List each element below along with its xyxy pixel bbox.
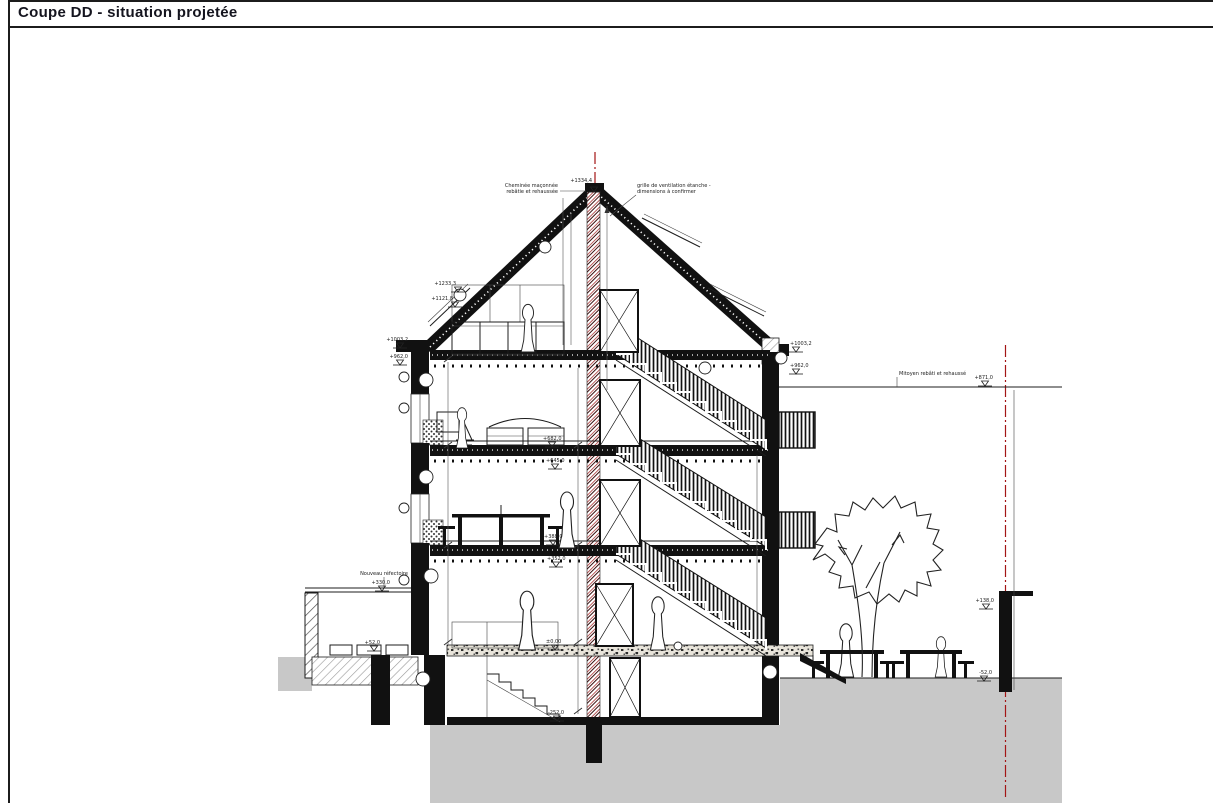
page-frame xyxy=(8,0,1213,803)
architectural-section-sheet: Cheminée maçonnée rebâtie et rehaussée g… xyxy=(0,0,1213,803)
drawing-title: Coupe DD - situation projetée xyxy=(18,4,238,21)
title-bar: Coupe DD - situation projetée xyxy=(8,0,1213,28)
